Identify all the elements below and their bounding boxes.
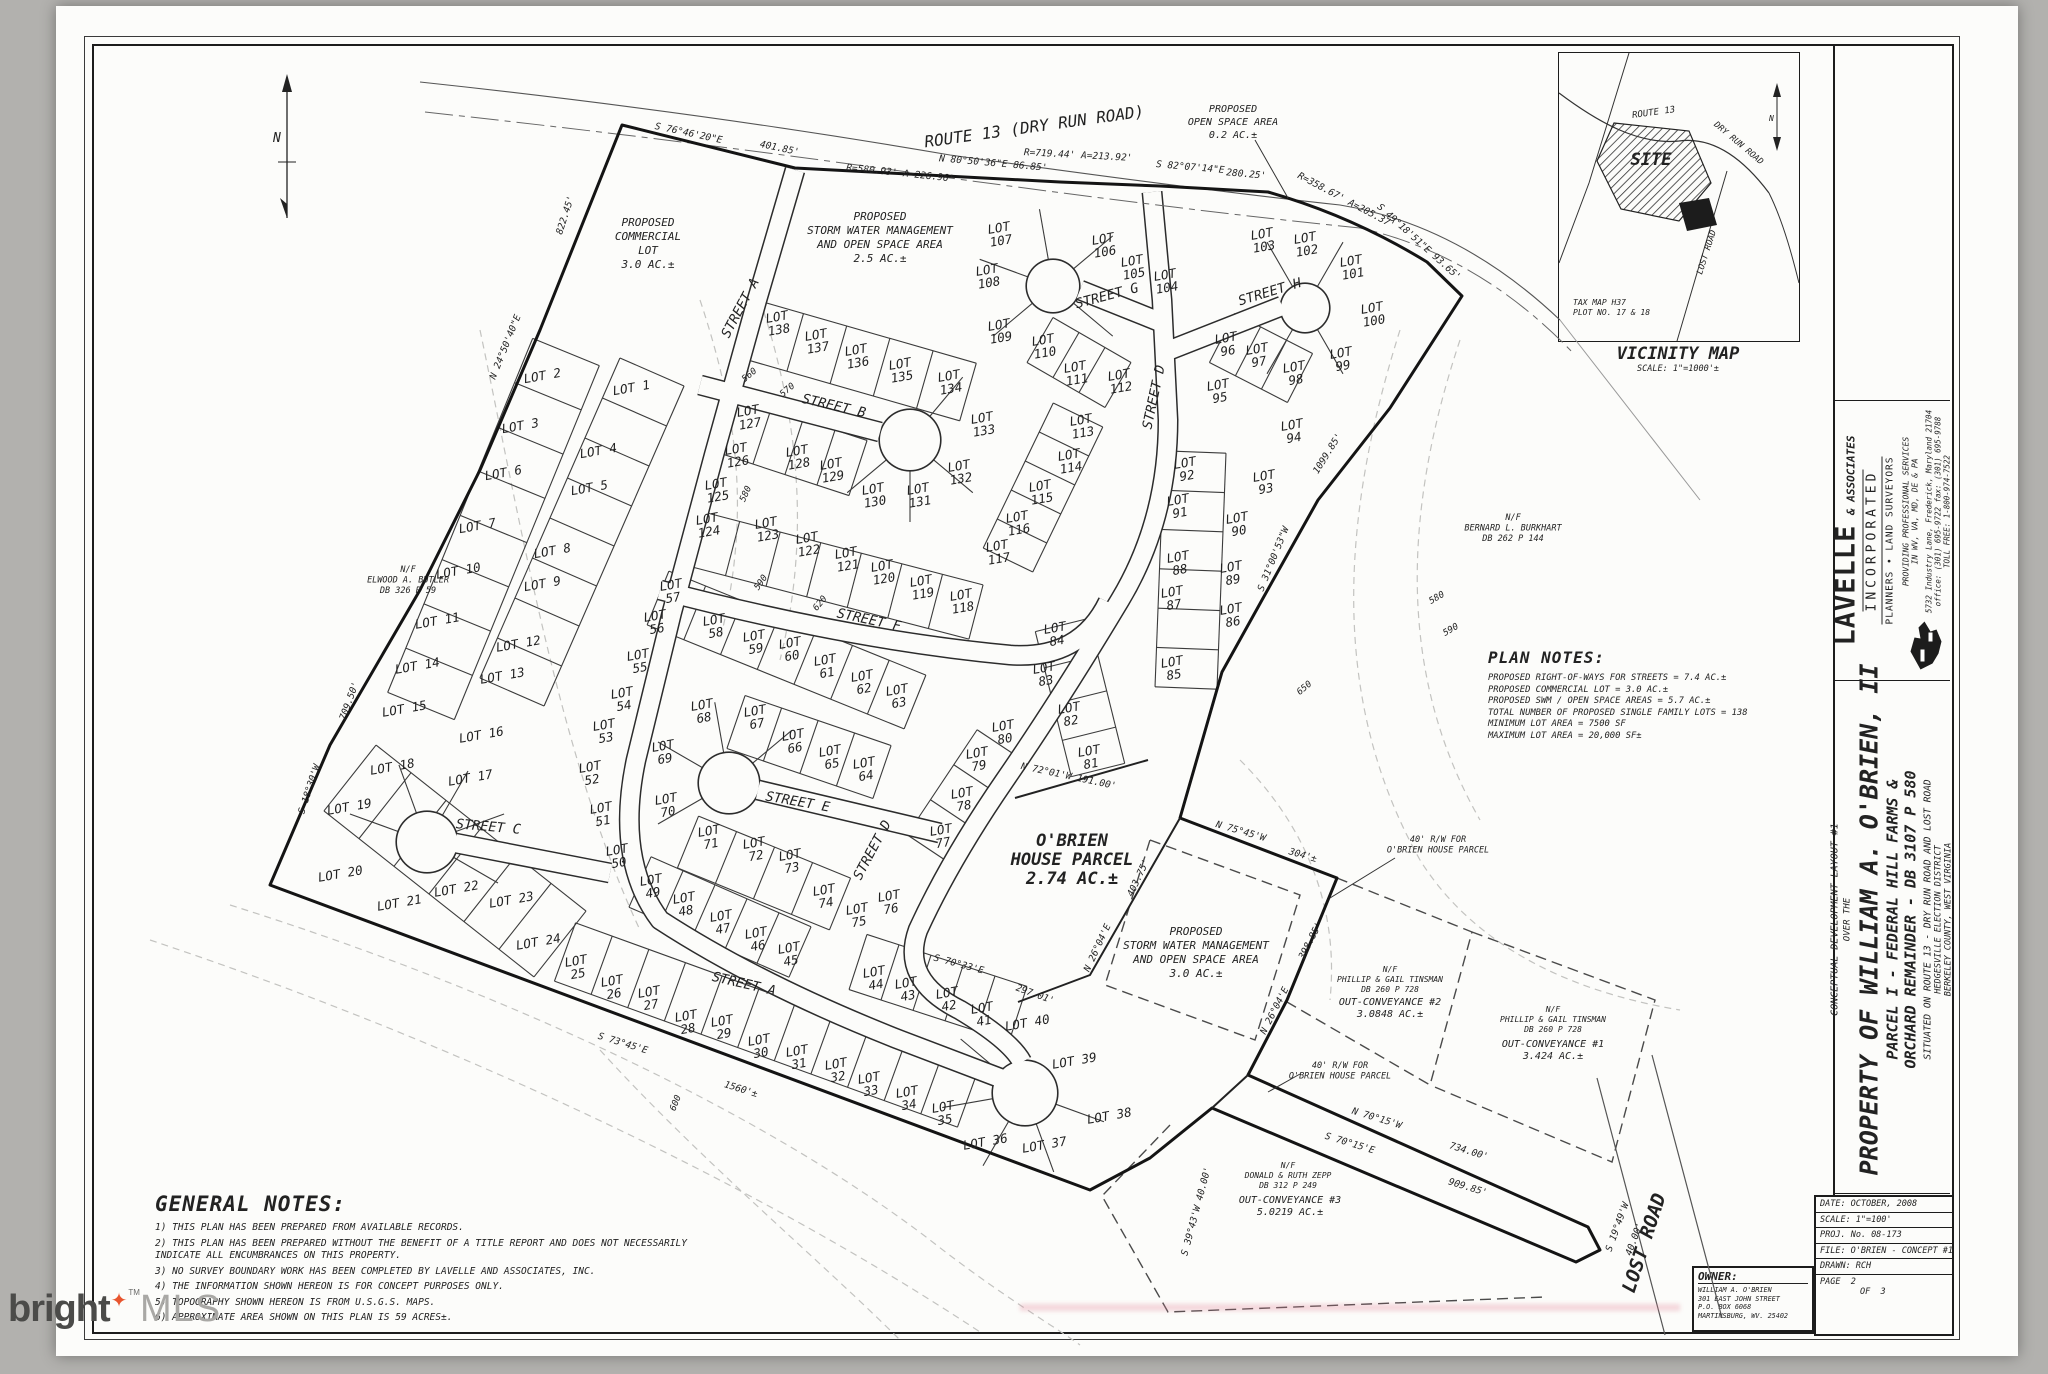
parcel-label: N/FPHILLIP & GAIL TINSMANDB 260 P 728 <box>1500 1005 1606 1034</box>
contour-label: 620 <box>811 594 829 613</box>
lot-label: LOT 23 <box>488 888 535 911</box>
lot-label: LOT94 <box>1279 415 1308 447</box>
lot-label: LOT99 <box>1328 343 1357 375</box>
lot-label: LOT 38 <box>1086 1104 1133 1127</box>
lot-label: LOT91 <box>1165 490 1194 522</box>
lot-label: LOT44 <box>861 962 890 994</box>
lot-label: LOT129 <box>818 454 847 486</box>
parcel-label: OUT-CONVEYANCE #13.424 AC.± <box>1502 1039 1604 1062</box>
bearing-label: S 18°30'W <box>296 762 323 816</box>
lot-label: LOT101 <box>1338 251 1367 283</box>
lot-label: LOT105 <box>1119 251 1148 283</box>
bearing-label: 734.00' <box>1448 1140 1490 1162</box>
parcel-label: OUT-CONVEYANCE #23.0848 AC.± <box>1339 997 1441 1020</box>
lot-divider <box>350 814 399 832</box>
lot-divider <box>1157 647 1219 649</box>
route13-label: ROUTE 13 (DRY RUN ROAD) <box>923 102 1145 152</box>
lot-label: LOT74 <box>811 880 840 912</box>
lot-label: LOT111 <box>1062 357 1091 389</box>
scanned-plat-sheet: LAVELLE & ASSOCIATES INCORPORATED PLANNE… <box>0 0 2048 1374</box>
lot-label: LOT89 <box>1218 557 1247 589</box>
lot-label: LOT117 <box>984 536 1013 568</box>
lot-divider <box>873 746 891 799</box>
lot-label: LOT130 <box>860 479 889 511</box>
bearing-label: N 70°15'W <box>1350 1106 1405 1132</box>
lot-label: LOT106 <box>1090 229 1119 261</box>
lot-divider <box>727 696 745 749</box>
lot-label: LOT64 <box>851 753 880 785</box>
lot-label: LOT133 <box>969 408 998 440</box>
lot-label: LOT76 <box>876 886 905 918</box>
lot-label: LOT 19 <box>326 795 373 818</box>
lot-label: LOT 4 <box>578 440 618 461</box>
lot-label: LOT109 <box>986 315 1015 347</box>
lot-label: LOT32 <box>823 1054 852 1086</box>
property-boundary <box>270 125 1600 1262</box>
lot-divider <box>602 398 666 426</box>
lot-label: LOT 18 <box>369 755 416 778</box>
lot-label: LOT79 <box>964 743 993 775</box>
contour-label: 600 <box>668 1094 683 1113</box>
lot-label: LOT104 <box>1152 265 1181 297</box>
parcel-label: N/FBERNARD L. BURKHARTDB 262 P 144 <box>1464 513 1562 544</box>
parcel-label: 40' R/W FORO'BRIEN HOUSE PARCEL <box>1387 835 1489 856</box>
contour-label: 580 <box>1427 590 1446 607</box>
lot-divider <box>917 351 934 409</box>
lot-label: LOT90 <box>1224 508 1253 540</box>
parcel-label: N/FDONALD & RUTH ZEPPDB 312 P 249 <box>1244 1161 1332 1190</box>
lot-label: LOT110 <box>1030 330 1059 362</box>
lot-label: LOT121 <box>833 543 862 575</box>
street-surface <box>914 192 1168 1062</box>
lot-label: LOT34 <box>894 1082 923 1114</box>
lot-label: LOT122 <box>794 528 823 560</box>
lot-label: LOT 9 <box>522 573 562 594</box>
cul-de-sac <box>880 410 940 470</box>
lot-label: LOT119 <box>908 571 937 603</box>
lot-label: LOT62 <box>849 666 878 698</box>
bearing-label: N 26°04'E <box>1081 922 1113 974</box>
lot-divider <box>1039 209 1048 260</box>
parcel-label: OUT-CONVEYANCE #35.0219 AC.± <box>1239 1195 1341 1218</box>
lot-label: LOT93 <box>1251 466 1280 498</box>
lot-label: LOT86 <box>1218 599 1247 631</box>
parcel-label: PROPOSEDCOMMERCIALLOT3.0 AC.± <box>615 216 681 271</box>
bearing-label: 1560'± <box>723 1079 759 1100</box>
lot-label: LOT 7 <box>457 515 497 536</box>
lot-label: LOT88 <box>1165 547 1194 579</box>
lot-label: LOT132 <box>946 456 975 488</box>
lot-divider <box>1161 529 1223 531</box>
lot-label: LOT108 <box>974 260 1003 292</box>
street-edge <box>914 192 1168 1062</box>
lot-label: LOT45 <box>776 938 805 970</box>
parcel-label: PROPOSEDOPEN SPACE AREA0.2 AC.± <box>1188 104 1278 141</box>
lot-label: LOT61 <box>812 650 841 682</box>
lot-label: LOT116 <box>1004 507 1033 539</box>
parcel-label: O'BRIENHOUSE PARCEL2.74 AC.± <box>1010 831 1134 889</box>
bearing-label: R=580.93' A=226.96' <box>846 162 955 184</box>
lot-label: LOT137 <box>803 325 832 357</box>
lot-label: LOT95 <box>1205 375 1234 407</box>
bearing-label: 398.85' <box>1296 921 1324 963</box>
cul-de-sac <box>699 753 759 813</box>
lot-divider <box>1062 727 1115 740</box>
lot-label: LOT65 <box>817 741 846 773</box>
lot-label: LOT 20 <box>317 862 364 885</box>
parcel-label: PROPOSEDSTORM WATER MANAGEMENTAND OPEN S… <box>1123 925 1270 980</box>
lot-divider <box>726 521 740 575</box>
lot-label: LOT 13 <box>479 664 526 687</box>
lot-block-edge <box>760 301 976 363</box>
lot-label: LOT128 <box>784 441 813 473</box>
bearing-label: 401.85' <box>759 139 800 158</box>
lot-label: LOT138 <box>764 307 793 339</box>
lot-label: LOT73 <box>777 845 806 877</box>
cul-de-sac <box>1027 260 1079 312</box>
lot-label: LOT26 <box>599 971 628 1003</box>
bearing-label: 822.45' <box>554 194 577 235</box>
lot-label: LOT124 <box>694 509 723 541</box>
parcel-label: N/FPHILLIP & GAIL TINSMANDB 260 P 728 <box>1337 965 1443 994</box>
lot-label: LOT63 <box>884 680 913 712</box>
lot-label: LOT 17 <box>447 766 495 789</box>
lot-label: LOT48 <box>671 888 700 920</box>
lot-label: LOT59 <box>741 626 770 658</box>
lot-label: LOT118 <box>948 585 977 617</box>
lot-divider <box>715 702 724 753</box>
cul-de-sac <box>397 812 457 872</box>
lot-label: LOT112 <box>1106 365 1135 397</box>
contour-label: 580 <box>738 485 754 504</box>
lot-divider <box>533 338 600 365</box>
lot-label: LOT100 <box>1359 298 1388 330</box>
contour-line <box>150 940 980 1332</box>
lot-label: LOT 15 <box>381 697 428 720</box>
lot-label: LOT 14 <box>394 654 441 677</box>
svg-text:N: N <box>272 131 281 146</box>
lot-label: LOT 5 <box>569 477 609 498</box>
lot-divider <box>904 675 926 729</box>
bearing-label: 297.01' <box>1014 983 1055 1007</box>
lot-divider <box>677 816 698 868</box>
lot-divider <box>715 832 736 884</box>
lot-label: LOT107 <box>986 218 1015 250</box>
dry-run-road-continuation <box>1560 320 1700 500</box>
lot-divider <box>515 383 582 410</box>
lot-label: LOT 2 <box>522 365 562 386</box>
bearing-label: N 26°04'E <box>1258 985 1292 1037</box>
lot-label: LOT135 <box>887 354 916 386</box>
lot-label: LOT97 <box>1244 339 1273 371</box>
parcel-label: 40' R/W FORO'BRIEN HOUSE PARCEL <box>1289 1061 1391 1082</box>
lot-label: LOT51 <box>588 798 617 830</box>
bearing-label: 280.25' <box>1226 167 1267 181</box>
lot-label: LOT71 <box>696 821 725 853</box>
star-icon: ✦ <box>111 1290 128 1312</box>
lot-label: LOT80 <box>990 716 1019 748</box>
lot-label: LOT25 <box>563 951 592 983</box>
bearing-label: N 24°50'40"E <box>487 313 523 382</box>
lot-label: LOT103 <box>1249 224 1278 256</box>
lot-label: LOT113 <box>1068 410 1097 442</box>
lot-label: LOT29 <box>709 1011 738 1043</box>
lot-label: LOT31 <box>784 1041 813 1073</box>
lot-label: LOT27 <box>636 982 665 1014</box>
bearing-label: 709.50' <box>338 680 362 721</box>
north-arrow: N <box>272 74 296 218</box>
lot-label: LOT52 <box>577 757 606 789</box>
lot-divider <box>1160 569 1222 571</box>
lot-label: LOT125 <box>703 474 732 506</box>
lot-label: LOT102 <box>1292 228 1321 260</box>
lot-label: LOT 40 <box>1004 1011 1051 1034</box>
lot-divider <box>849 934 867 989</box>
lot-label: LOT 3 <box>500 415 540 436</box>
lot-label: LOT 21 <box>376 891 423 914</box>
lot-label: LOT 24 <box>515 930 562 953</box>
parcel-label: PROPOSEDSTORM WATER MANAGEMENTAND OPEN S… <box>807 210 954 265</box>
lot-label: LOT30 <box>746 1030 775 1062</box>
lot-label: LOT 37 <box>1021 1133 1069 1156</box>
lot-label: LOT 39 <box>1051 1049 1098 1072</box>
lot-label: LOT53 <box>591 715 620 747</box>
lot-label: LOT33 <box>856 1068 885 1100</box>
lot-label: LOT136 <box>843 340 872 372</box>
lot-label: LOT72 <box>741 833 770 865</box>
lot-block-edge <box>1053 317 1131 362</box>
lot-label: LOT 6 <box>483 462 523 483</box>
lot-label: LOT67 <box>742 701 771 733</box>
lot-divider <box>787 314 804 372</box>
lot-label: LOT70 <box>653 789 682 821</box>
bearing-label: 1099.85' <box>1311 431 1345 476</box>
lot-label: LOT 16 <box>458 723 505 746</box>
lot-divider <box>1155 687 1217 689</box>
contour-line <box>1417 340 1480 820</box>
bearing-label: S 73°45'E <box>597 1031 650 1057</box>
lot-label: LOT 12 <box>495 632 542 655</box>
brightmls-watermark: bright✦TMMLS <box>8 1288 221 1331</box>
lot-label: LOT85 <box>1159 652 1188 684</box>
cul-de-sac <box>993 1061 1057 1125</box>
lot-label: LOT35 <box>930 1097 959 1129</box>
lot-divider <box>515 598 579 626</box>
bearing-label: S 39°43'W 40.00' <box>1179 1166 1213 1257</box>
lot-label: LOT75 <box>844 899 873 931</box>
plat-drawing: NLOT 1LOT 2LOT 3LOT 4LOT 5LOT 6LOT 7LOT … <box>0 0 2048 1374</box>
lot-label: LOT 8 <box>532 540 572 561</box>
bearing-label: S 49°18'51"E 93.65' <box>1375 202 1463 283</box>
lot-label: LOT82 <box>1056 698 1085 730</box>
lot-label: LOT126 <box>723 439 752 471</box>
lot-label: LOT66 <box>780 725 809 757</box>
bearing-label: S 70°33'E <box>932 953 985 977</box>
lot-label: LOT68 <box>689 695 718 727</box>
lot-label: LOT98 <box>1281 357 1310 389</box>
lot-label: LOT92 <box>1172 453 1201 485</box>
lot-label: LOT60 <box>777 633 806 665</box>
contour-label: 590 <box>1441 622 1460 639</box>
lot-divider <box>873 338 890 396</box>
contour-label: 650 <box>1295 679 1314 697</box>
lot-label: LOT134 <box>936 366 965 398</box>
lot-label: LOT131 <box>905 479 934 511</box>
contour-line <box>1354 330 1680 1010</box>
lot-label: LOT123 <box>753 513 782 545</box>
lot-label: LOT120 <box>869 556 898 588</box>
bearing-label: S 82°07'14"E <box>1156 159 1226 176</box>
bearing-label: S 70°15'E <box>1324 1131 1377 1157</box>
lot-label: LOT81 <box>1076 741 1105 773</box>
lot-label: LOT54 <box>609 683 638 715</box>
lot-label: LOT115 <box>1027 476 1056 508</box>
scan-artifact <box>1020 1304 1680 1311</box>
lot-label: LOT114 <box>1056 445 1085 477</box>
lot-label: LOT 1 <box>611 377 651 398</box>
